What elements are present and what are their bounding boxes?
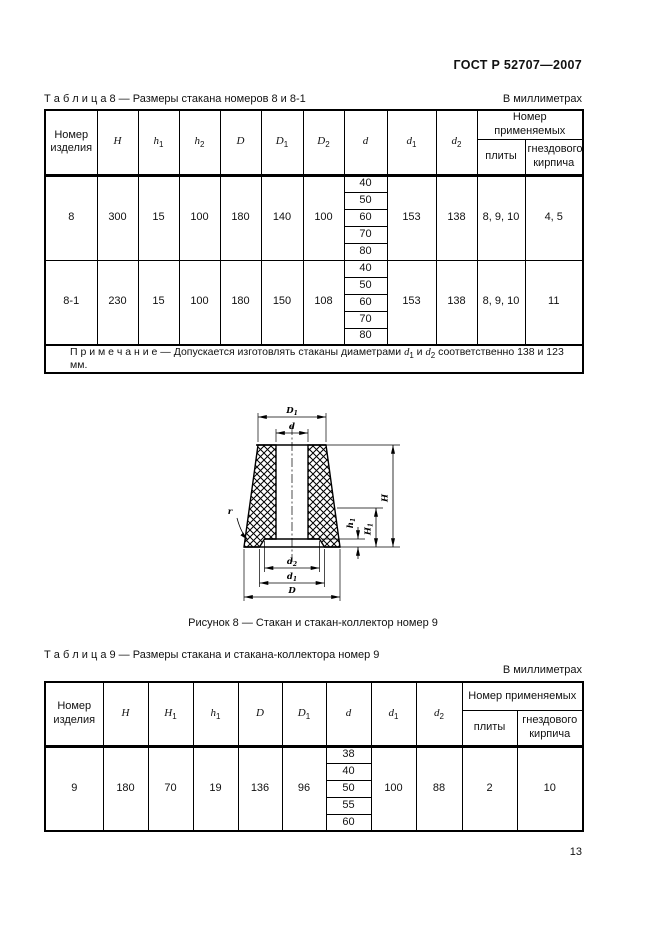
table-cell: 153 (387, 260, 436, 345)
item-number-cell: 8 (45, 175, 97, 260)
table-cell: 108 (303, 260, 344, 345)
column-header: D2 (303, 110, 344, 175)
table9-container: Номер изделияHH1h1DD1dd1d2Номер применяе… (44, 681, 582, 832)
column-header: h1 (138, 110, 179, 175)
table-cell: 138 (436, 260, 477, 345)
column-header: Номер изделия (45, 110, 97, 175)
column-header: d1 (387, 110, 436, 175)
d-value-cell: 50 (344, 192, 387, 209)
d-value-cell: 60 (344, 294, 387, 311)
d-value-cell: 38 (326, 746, 371, 763)
d-value-cell: 40 (344, 175, 387, 192)
table9-title: Т а б л и ц а 9 — Размеры стакана и стак… (44, 649, 582, 661)
table-cell: 96 (282, 746, 326, 831)
column-header: D (238, 682, 282, 746)
column-header: D1 (282, 682, 326, 746)
item-number-cell: 8-1 (45, 260, 97, 345)
d-value-cell: 80 (344, 328, 387, 345)
table-cell: 70 (148, 746, 193, 831)
table-cell: 230 (97, 260, 138, 345)
d-value-cell: 55 (326, 797, 371, 814)
table9-units-label: В миллиметрах (44, 664, 582, 676)
column-header: d (344, 110, 387, 175)
dim-label-d1: d1 (287, 572, 297, 583)
figure-caption: Рисунок 8 — Стакан и стакан-коллектор но… (44, 617, 582, 629)
column-header: H1 (148, 682, 193, 746)
table8-container: Номер изделияHh1h2DD1D2dd1d2Номер примен… (44, 109, 582, 374)
d-value-cell: 60 (344, 209, 387, 226)
header-row: Номер изделияHh1h2DD1D2dd1d2Номер примен… (45, 110, 583, 139)
d-value-cell: 40 (344, 260, 387, 277)
column-header: H (103, 682, 148, 746)
table-cell: 136 (238, 746, 282, 831)
page-number: 13 (44, 846, 582, 858)
column-header: гнездового кирпича (517, 710, 583, 746)
dim-label-H: H (381, 493, 391, 503)
table-note: П р и м е ч а н и е — Допускается изгото… (45, 345, 583, 373)
table-cell: 100 (371, 746, 416, 831)
group-column-header: Номер применяемых (462, 682, 583, 710)
table8-units-label: В миллиметрах (503, 93, 582, 105)
brick-cell: 10 (517, 746, 583, 831)
table-cell: 180 (103, 746, 148, 831)
dim-label-d: d (289, 422, 295, 432)
table-cell: 138 (436, 175, 477, 260)
header-row: Номер изделияHH1h1DD1dd1d2Номер применяе… (45, 682, 583, 710)
column-header: h2 (179, 110, 220, 175)
dim-label-d2: d2 (287, 557, 297, 568)
table-cell: 180 (220, 260, 261, 345)
dim-label-D1: D1 (285, 406, 298, 417)
column-header: Номер изделия (45, 682, 103, 746)
table-cell: 140 (261, 175, 303, 260)
dimension-table: Номер изделияHh1h2DD1D2dd1d2Номер примен… (44, 109, 584, 374)
dim-label-D: D (287, 586, 296, 596)
table-row: 830015100180140100401531388, 9, 104, 5 (45, 175, 583, 192)
dim-label-r: r (228, 507, 233, 517)
column-header: d1 (371, 682, 416, 746)
d-value-cell: 50 (326, 780, 371, 797)
column-header: d2 (416, 682, 462, 746)
table-cell: 100 (179, 175, 220, 260)
table-cell: 153 (387, 175, 436, 260)
table8-title-row: Т а б л и ц а 8 — Размеры стакана номеро… (44, 93, 582, 105)
item-number-cell: 9 (45, 746, 103, 831)
brick-cell: 4, 5 (525, 175, 583, 260)
plates-cell: 2 (462, 746, 517, 831)
figure-drawing: D1 d H H1 h1 d2 d1 D r (215, 390, 411, 608)
table-cell: 88 (416, 746, 462, 831)
table-row: 91807019136963810088210 (45, 746, 583, 763)
d-value-cell: 50 (344, 277, 387, 294)
table-cell: 150 (261, 260, 303, 345)
dimension-table: Номер изделияHH1h1DD1dd1d2Номер применяе… (44, 681, 584, 832)
table-cell: 300 (97, 175, 138, 260)
column-header: H (97, 110, 138, 175)
column-header: d (326, 682, 371, 746)
table-cell: 180 (220, 175, 261, 260)
column-header: плиты (477, 139, 525, 175)
d-value-cell: 40 (326, 763, 371, 780)
column-header: гнездового кирпича (525, 139, 583, 175)
column-header: h1 (193, 682, 238, 746)
dim-label-h1: h1 (346, 518, 357, 528)
table8-title: Т а б л и ц а 8 — Размеры стакана номеро… (44, 93, 306, 105)
table-row: 8-123015100180150108401531388, 9, 1011 (45, 260, 583, 277)
column-header: D1 (261, 110, 303, 175)
table-cell: 100 (303, 175, 344, 260)
group-column-header: Номер применяемых (477, 110, 583, 139)
table-cell: 15 (138, 175, 179, 260)
brick-cell: 11 (525, 260, 583, 345)
table-cell: 19 (193, 746, 238, 831)
document-header: ГОСТ Р 52707—2007 (44, 58, 582, 72)
plates-cell: 8, 9, 10 (477, 260, 525, 345)
table-note-row: П р и м е ч а н и е — Допускается изгото… (45, 345, 583, 373)
column-header: D (220, 110, 261, 175)
table-cell: 15 (138, 260, 179, 345)
d-value-cell: 70 (344, 226, 387, 243)
column-header: плиты (462, 710, 517, 746)
table-cell: 100 (179, 260, 220, 345)
d-value-cell: 80 (344, 243, 387, 260)
column-header: d2 (436, 110, 477, 175)
d-value-cell: 60 (326, 814, 371, 831)
plates-cell: 8, 9, 10 (477, 175, 525, 260)
d-value-cell: 70 (344, 311, 387, 328)
dim-label-H1: H1 (364, 523, 375, 536)
document-page: ГОСТ Р 52707—2007 Т а б л и ц а 8 — Разм… (0, 0, 661, 936)
figure-block: D1 d H H1 h1 d2 d1 D r (215, 390, 411, 613)
